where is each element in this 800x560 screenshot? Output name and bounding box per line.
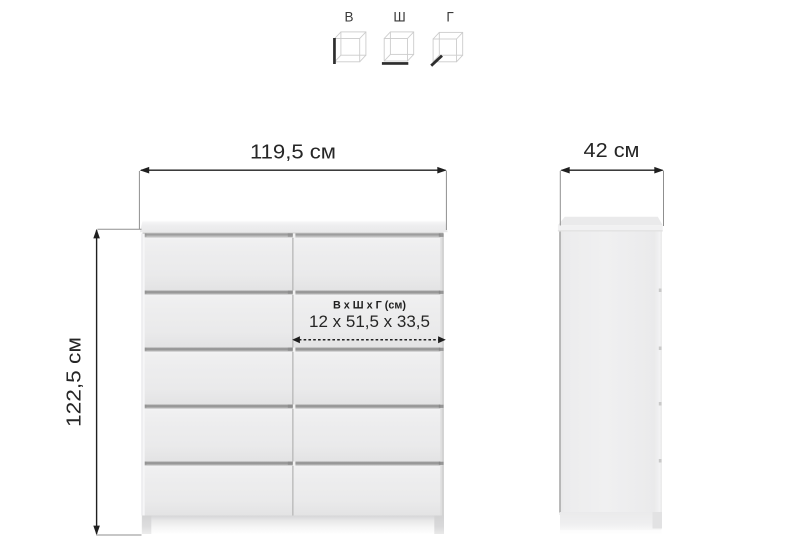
svg-text:119,5 см: 119,5 см	[250, 141, 336, 164]
svg-text:В х Ш х Г (см): В х Ш х Г (см)	[333, 299, 406, 311]
svg-text:42 см: 42 см	[584, 139, 640, 162]
svg-text:12 x 51,5 x 33,5: 12 x 51,5 x 33,5	[309, 312, 430, 331]
svg-text:Г: Г	[446, 10, 454, 25]
svg-text:В: В	[344, 10, 353, 25]
svg-text:Ш: Ш	[393, 10, 405, 25]
svg-text:122,5 см: 122,5 см	[63, 337, 86, 427]
